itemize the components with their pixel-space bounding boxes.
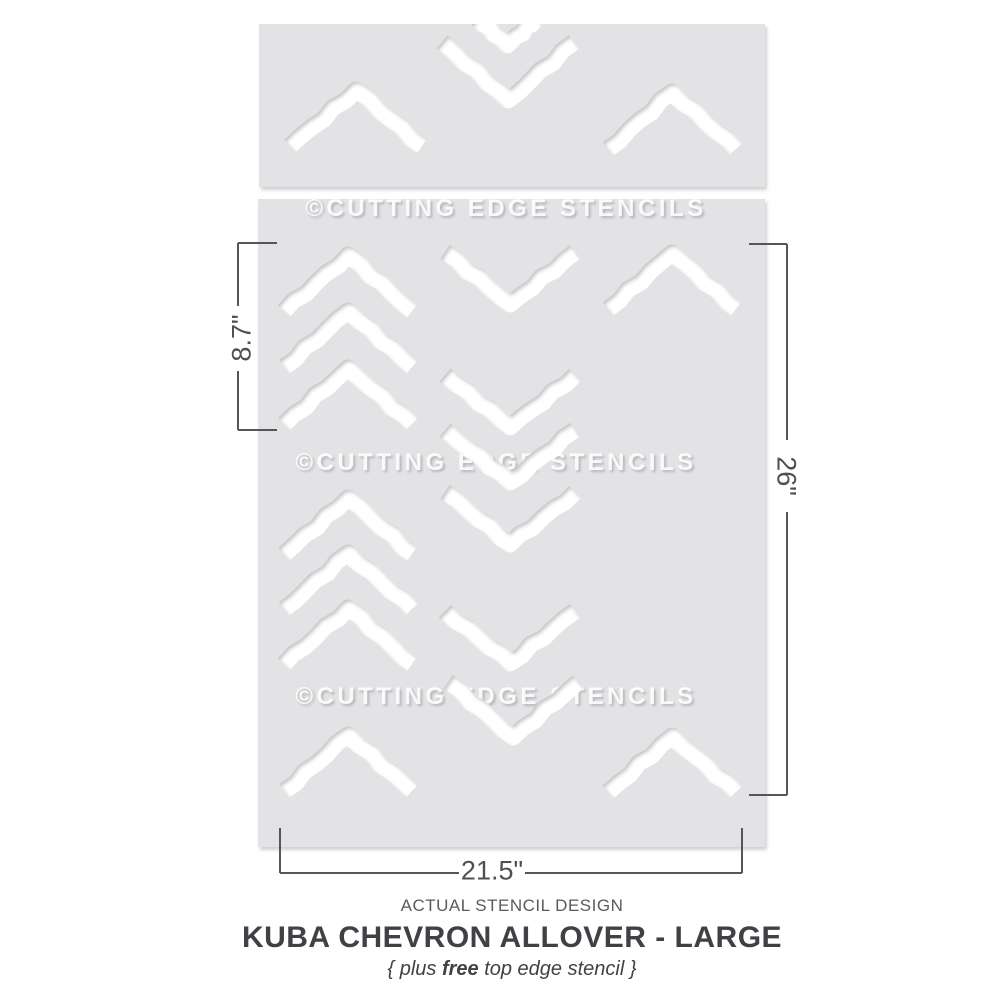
subtitle-suffix: top edge stencil }: [479, 958, 637, 980]
caption-block: ACTUAL STENCIL DESIGN KUBA CHEVRON ALLOV…: [24, 897, 1000, 981]
chevron-cutout-down: [445, 611, 575, 663]
cutout-group: [284, 252, 736, 792]
chevron-cutout-down: [445, 252, 575, 304]
chevron-cutout-up: [284, 368, 412, 424]
stencil-product-image: ©CUTTING EDGE STENCILS©CUTTING EDGE STEN…: [0, 0, 1000, 1000]
chevron-cutout-up: [284, 608, 412, 664]
product-title: KUBA CHEVRON ALLOVER - LARGE: [24, 922, 1000, 954]
chevron-cutout-up: [608, 253, 736, 309]
chevron-cutout-up: [284, 735, 412, 791]
chevron-cutout-down: [448, 682, 578, 737]
caption-eyebrow: ACTUAL STENCIL DESIGN: [24, 897, 1000, 915]
dimension-label: 8.7": [227, 314, 258, 361]
subtitle-bold-word: free: [442, 958, 479, 980]
chevron-cutout-up: [608, 92, 736, 149]
cutout-group: [290, 19, 736, 149]
chevron-cutout-up: [284, 311, 412, 367]
chevron-cutout-down: [445, 375, 575, 427]
chevron-cutout-up: [290, 90, 422, 146]
chevron-cutout-down: [445, 430, 575, 482]
chevron-cutout-down: [445, 492, 575, 544]
chevron-cutout-down: [478, 19, 536, 45]
chevron-cutout-up: [608, 736, 736, 792]
subtitle-prefix: { plus: [387, 958, 441, 980]
caption-subtitle: { plus free top edge stencil }: [24, 957, 1000, 981]
stencil-art: [0, 0, 1000, 1000]
dimension-label: 21.5": [461, 856, 523, 887]
dimension-label: 26": [771, 456, 802, 496]
